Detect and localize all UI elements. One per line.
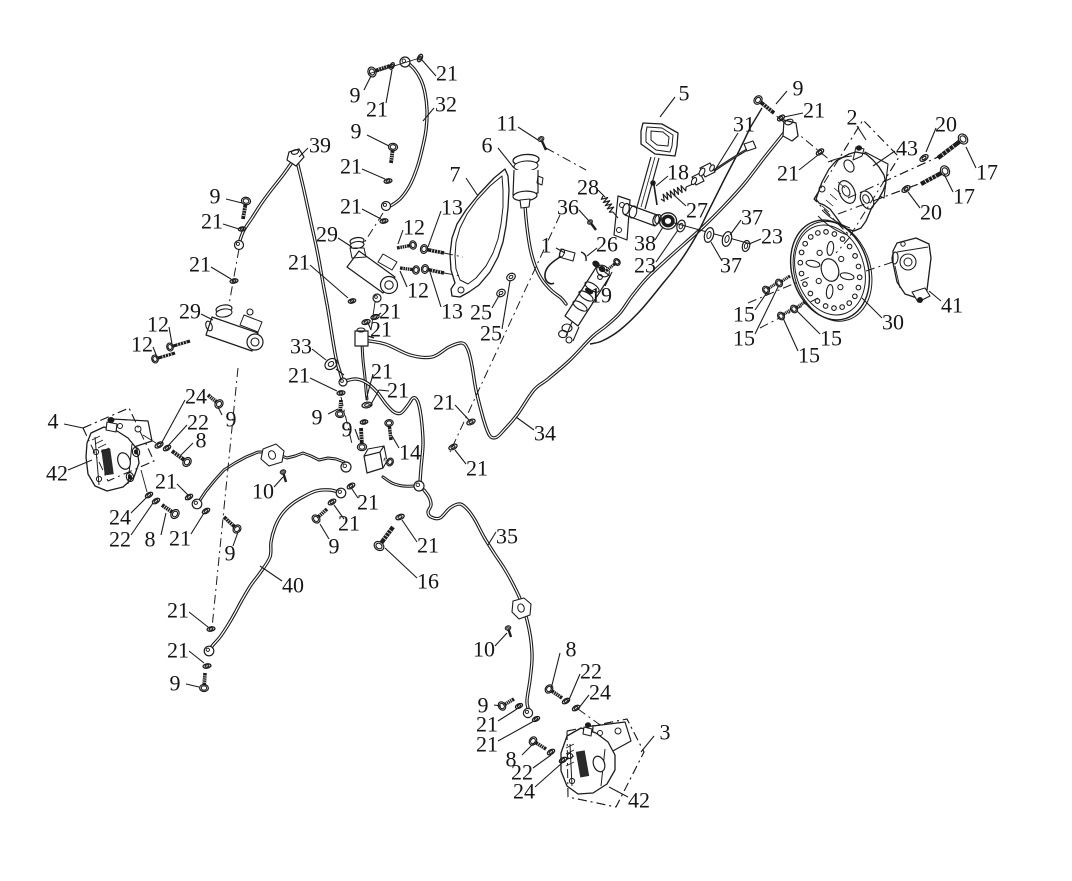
svg-text:34: 34 (534, 421, 556, 446)
svg-text:23: 23 (761, 224, 783, 249)
svg-text:9: 9 (210, 184, 221, 209)
svg-text:5: 5 (679, 81, 690, 106)
svg-text:21: 21 (338, 511, 360, 536)
svg-text:35: 35 (496, 524, 518, 549)
svg-text:9: 9 (329, 534, 340, 559)
svg-text:10: 10 (252, 479, 274, 504)
svg-text:21: 21 (201, 209, 223, 234)
svg-text:15: 15 (733, 302, 755, 327)
svg-text:9: 9 (170, 671, 181, 696)
svg-text:2: 2 (847, 105, 858, 130)
svg-text:21: 21 (476, 732, 498, 757)
svg-text:12: 12 (403, 215, 425, 240)
svg-text:9: 9 (226, 407, 237, 432)
svg-text:9: 9 (351, 119, 362, 144)
svg-text:9: 9 (312, 405, 323, 430)
svg-text:21: 21 (189, 252, 211, 277)
svg-text:21: 21 (803, 98, 825, 123)
svg-text:9: 9 (350, 83, 361, 108)
svg-text:9: 9 (342, 417, 353, 442)
svg-text:4: 4 (48, 409, 59, 434)
svg-text:27: 27 (686, 198, 708, 223)
svg-text:17: 17 (976, 160, 998, 185)
svg-text:28: 28 (577, 175, 599, 200)
svg-text:16: 16 (417, 569, 439, 594)
svg-text:21: 21 (357, 490, 379, 515)
svg-text:41: 41 (941, 293, 963, 318)
svg-text:14: 14 (399, 440, 421, 465)
svg-text:21: 21 (288, 363, 310, 388)
svg-text:42: 42 (628, 788, 650, 813)
svg-text:21: 21 (466, 456, 488, 481)
svg-text:21: 21 (167, 638, 189, 663)
svg-text:15: 15 (820, 326, 842, 351)
svg-text:24: 24 (513, 779, 535, 804)
svg-text:29: 29 (179, 299, 201, 324)
svg-text:19: 19 (590, 283, 612, 308)
svg-text:33: 33 (290, 334, 312, 359)
svg-text:18: 18 (667, 160, 689, 185)
svg-text:13: 13 (441, 299, 463, 324)
svg-text:43: 43 (896, 136, 918, 161)
svg-text:10: 10 (473, 637, 495, 662)
svg-text:15: 15 (733, 326, 755, 351)
svg-text:20: 20 (920, 200, 942, 225)
svg-text:7: 7 (450, 162, 461, 187)
svg-text:30: 30 (882, 310, 904, 335)
svg-text:21: 21 (387, 378, 409, 403)
svg-text:42: 42 (46, 461, 68, 486)
svg-text:24: 24 (589, 680, 611, 705)
svg-text:21: 21 (433, 390, 455, 415)
svg-text:9: 9 (793, 76, 804, 101)
svg-text:37: 37 (741, 205, 763, 230)
svg-text:15: 15 (798, 343, 820, 368)
svg-text:21: 21 (436, 61, 458, 86)
svg-text:13: 13 (441, 195, 463, 220)
svg-text:21: 21 (366, 97, 388, 122)
svg-text:25: 25 (480, 321, 502, 346)
svg-text:21: 21 (340, 194, 362, 219)
svg-text:22: 22 (109, 527, 131, 552)
svg-text:24: 24 (185, 384, 207, 409)
svg-text:36: 36 (557, 195, 579, 220)
svg-text:11: 11 (496, 111, 517, 136)
svg-text:40: 40 (282, 573, 304, 598)
svg-text:39: 39 (309, 133, 331, 158)
svg-text:1: 1 (541, 233, 552, 258)
svg-text:21: 21 (417, 533, 439, 558)
svg-text:26: 26 (596, 232, 618, 257)
svg-text:8: 8 (196, 428, 207, 453)
svg-text:23: 23 (634, 253, 656, 278)
svg-text:21: 21 (167, 598, 189, 623)
svg-text:32: 32 (435, 92, 457, 117)
svg-text:6: 6 (482, 133, 493, 158)
svg-text:37: 37 (720, 253, 742, 278)
svg-text:12: 12 (407, 278, 429, 303)
svg-text:31: 31 (733, 112, 755, 137)
svg-text:29: 29 (316, 222, 338, 247)
svg-text:8: 8 (145, 527, 156, 552)
svg-text:17: 17 (953, 184, 975, 209)
svg-text:3: 3 (660, 720, 671, 745)
svg-text:21: 21 (777, 161, 799, 186)
svg-text:12: 12 (131, 332, 153, 357)
svg-text:21: 21 (370, 317, 392, 342)
svg-text:20: 20 (935, 112, 957, 137)
svg-text:8: 8 (566, 637, 577, 662)
svg-text:21: 21 (340, 154, 362, 179)
svg-text:21: 21 (155, 469, 177, 494)
svg-text:21: 21 (169, 526, 191, 551)
svg-text:21: 21 (288, 250, 310, 275)
